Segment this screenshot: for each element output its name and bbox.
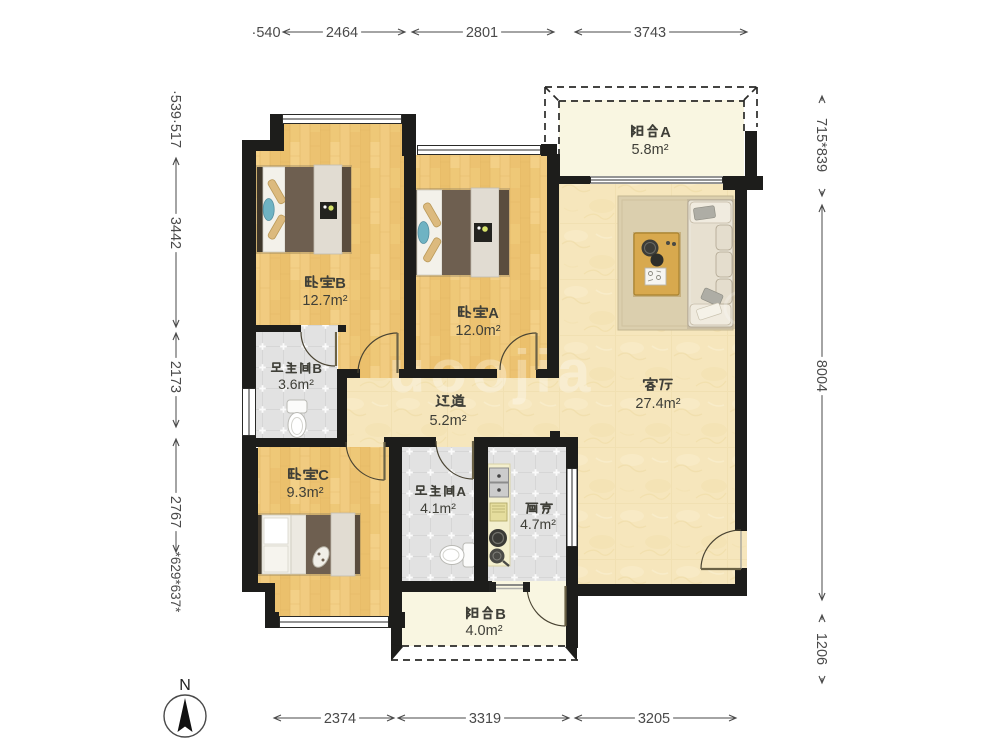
svg-text:2173: 2173 bbox=[167, 361, 183, 393]
svg-text:715*839: 715*839 bbox=[813, 118, 829, 172]
svg-text:2801: 2801 bbox=[466, 25, 498, 41]
svg-text:3319: 3319 bbox=[469, 711, 501, 727]
svg-text:2374: 2374 bbox=[324, 711, 356, 727]
svg-text:2464: 2464 bbox=[326, 25, 358, 41]
svg-text:4.0m²: 4.0m² bbox=[465, 623, 502, 639]
svg-text:C: C bbox=[318, 468, 329, 484]
svg-text:12.0m²: 12.0m² bbox=[455, 323, 500, 339]
svg-text:N: N bbox=[179, 677, 191, 694]
svg-text:1206: 1206 bbox=[813, 633, 829, 665]
svg-text:3205: 3205 bbox=[638, 711, 670, 727]
svg-text:27.4m²: 27.4m² bbox=[635, 396, 680, 412]
svg-text:·539·517: ·539·517 bbox=[167, 90, 183, 148]
svg-text:B: B bbox=[312, 361, 322, 376]
svg-text:B: B bbox=[335, 276, 346, 292]
svg-text:3743: 3743 bbox=[634, 25, 666, 41]
svg-text:9.3m²: 9.3m² bbox=[286, 485, 323, 501]
svg-text:4.7m²: 4.7m² bbox=[520, 516, 556, 532]
svg-text:5.2m²: 5.2m² bbox=[429, 413, 466, 429]
svg-text:A: A bbox=[456, 484, 466, 499]
svg-text:3.6m²: 3.6m² bbox=[278, 376, 314, 392]
svg-text:A: A bbox=[488, 306, 499, 322]
svg-text:·540: ·540 bbox=[251, 25, 280, 41]
svg-text:B: B bbox=[495, 607, 506, 623]
svg-text:A: A bbox=[660, 125, 671, 141]
svg-text:5.8m²: 5.8m² bbox=[631, 142, 668, 158]
svg-text:4.1m²: 4.1m² bbox=[420, 500, 456, 516]
svg-text:*629*637*: *629*637* bbox=[168, 552, 183, 614]
svg-text:12.7m²: 12.7m² bbox=[302, 293, 347, 309]
svg-text:3442: 3442 bbox=[167, 217, 183, 249]
svg-text:2767: 2767 bbox=[167, 496, 183, 528]
svg-text:8004: 8004 bbox=[813, 360, 829, 392]
